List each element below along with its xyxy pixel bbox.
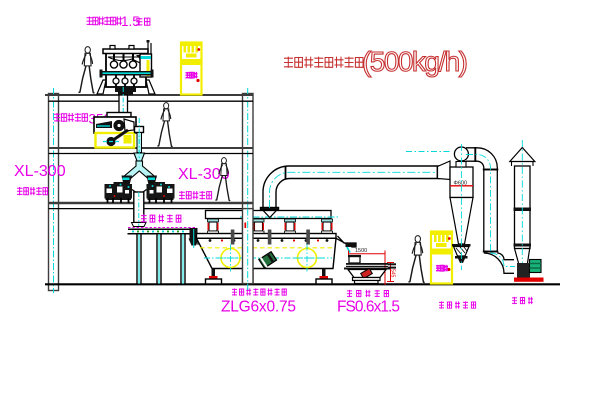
svg-text:FS0.6x1.5: FS0.6x1.5 [337, 299, 400, 316]
svg-text:(500kg/h): (500kg/h) [362, 46, 468, 77]
svg-text:ZLG6x0.75: ZLG6x0.75 [221, 299, 296, 316]
svg-text:1500: 1500 [355, 248, 367, 254]
svg-text:545: 545 [390, 269, 396, 278]
svg-text:XL-300: XL-300 [14, 163, 66, 180]
svg-text:Φ600: Φ600 [454, 181, 468, 187]
